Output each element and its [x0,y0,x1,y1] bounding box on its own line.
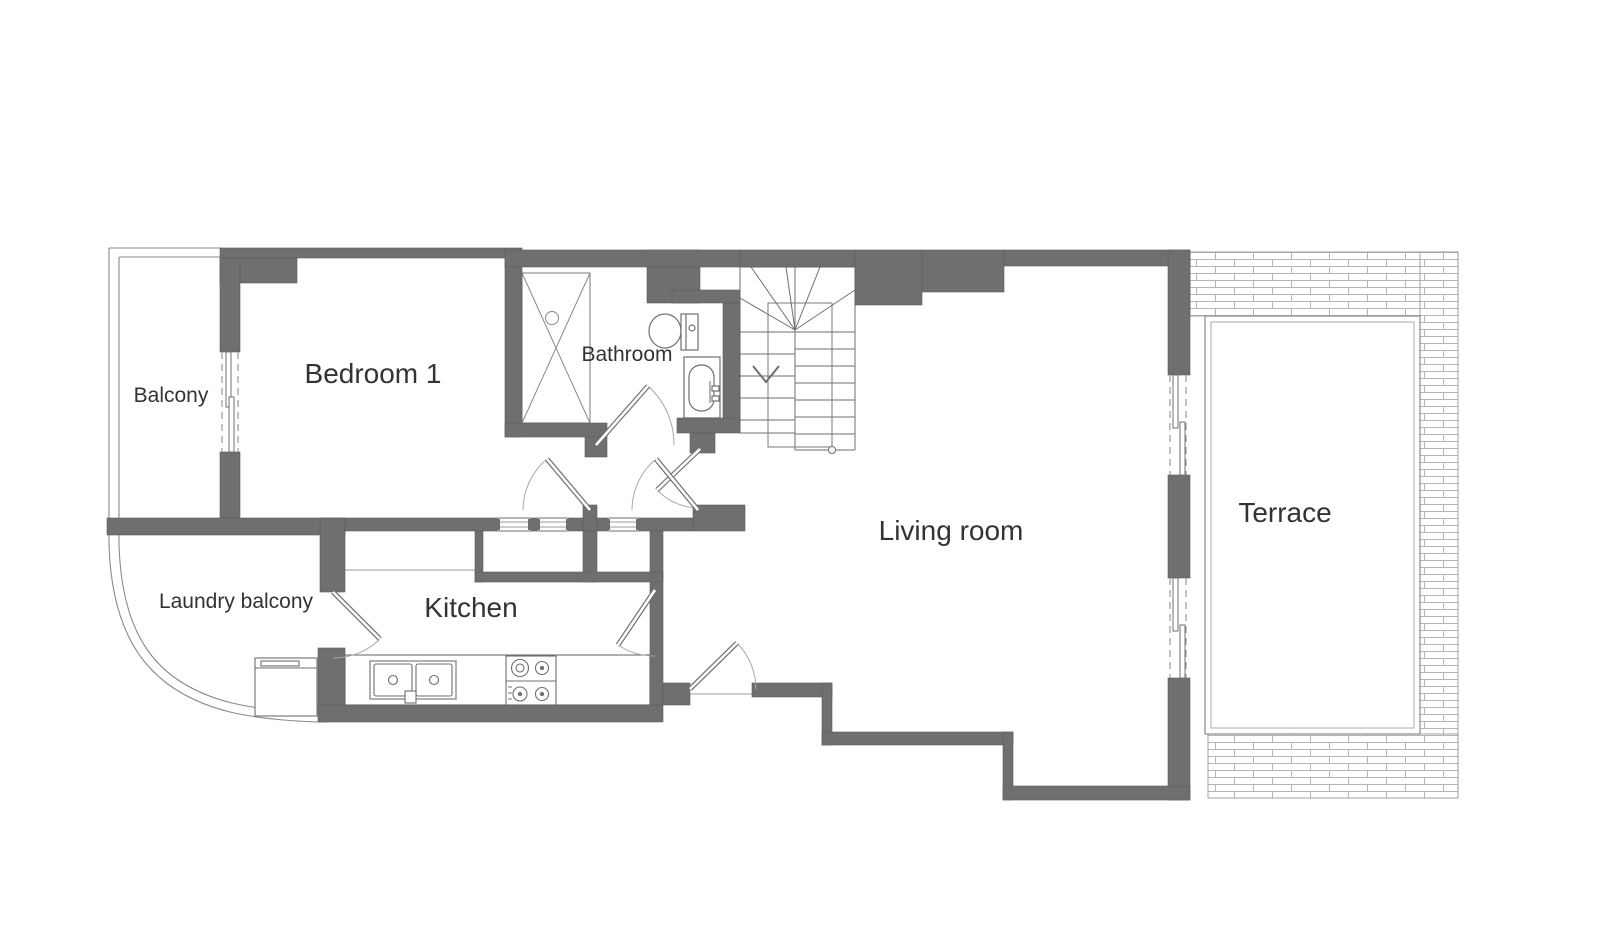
door-shower-room [596,386,674,445]
room-label-terrace: Terrace [1238,497,1331,528]
floor-plan-page: Balcony Bedroom 1 Bathroom Living room T… [0,0,1600,940]
room-label-balcony: Balcony [134,384,209,407]
stove [506,656,556,705]
washbasin [684,357,720,418]
staircase [740,267,855,454]
stair-down-arrow-icon [753,366,779,382]
door-living-room [690,643,756,689]
sliding-door-terrace-upper [1170,375,1186,475]
window-vent-icon [607,518,639,531]
shower [522,273,590,423]
balcony-boundary-lines [109,248,326,722]
room-label-bathroom: Bathroom [581,343,672,366]
door-kitchen [618,590,655,656]
sliding-door-balcony [222,352,238,452]
door-bedroom-hall [523,459,590,510]
kitchen-sink [370,661,456,703]
washing-machine [255,658,317,716]
room-label-living-room: Living room [879,515,1024,546]
room-label-bedroom-1: Bedroom 1 [305,358,442,389]
door-wc [657,449,700,508]
internal-window-vents [497,518,639,531]
room-label-laundry-balcony: Laundry balcony [159,590,314,613]
floor-plan-drawing: Balcony Bedroom 1 Bathroom Living room T… [0,0,1600,940]
sliding-door-terrace-lower [1170,578,1186,678]
window-vent-icon [537,518,569,531]
window-vent-icon [497,518,531,531]
room-label-kitchen: Kitchen [424,592,517,623]
